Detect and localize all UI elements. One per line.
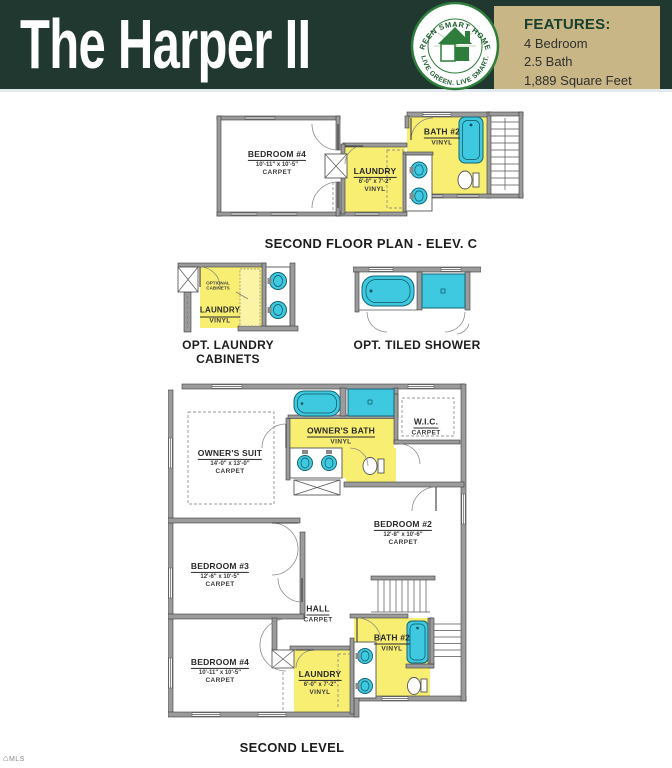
room-label-laundry: LAUNDRY 6'-0" x 7'-2" VINYL <box>299 663 342 697</box>
plan-second-floor-elev-c: BEDROOM #4 10'-11" x 10'-5" CARPET LAUND… <box>215 110 527 226</box>
chase-box <box>272 650 294 668</box>
feature-baths: 2.5 Bath <box>524 53 660 71</box>
room-label-owners-bath: OWNER'S BATH VINYL <box>307 420 375 447</box>
floor-plan-flyer: The Harper II FEATURES: 4 Bedroom 2.5 Ba… <box>0 0 672 768</box>
caption-second-floor-plan: SECOND FLOOR PLAN - ELEV. C <box>215 236 527 251</box>
room-label-bedroom2: BEDROOM #2 12'-8" x 10'-6" CARPET <box>374 513 432 547</box>
plan-second-level: OWNER'S SUIT 14'-0" x 13'-0" CARPET OWNE… <box>168 382 468 734</box>
room-label-bath2: BATH #2 VINYL <box>424 121 460 148</box>
features-heading: FEATURES: <box>524 16 660 33</box>
caption-opt-tiled-shower: OPT. TILED SHOWER <box>353 338 481 352</box>
header-divider <box>0 89 672 92</box>
chase-box <box>178 267 198 292</box>
toilet <box>363 458 384 475</box>
features-panel: FEATURES: 4 Bedroom 2.5 Bath 1,889 Squar… <box>494 6 660 89</box>
feature-bedrooms: 4 Bedroom <box>524 35 660 53</box>
toilet <box>458 171 479 189</box>
room-label-laundry: LAUNDRY 6'-0" x 7'-2" VINYL <box>354 160 397 194</box>
optional-cabinets-note: OPTIONAL CABINETS <box>201 281 235 292</box>
room-label-wic: W.I.C. CARPET <box>411 411 440 438</box>
watermark: ⌂MLS <box>3 753 25 763</box>
feature-sqft: 1,889 Square Feet <box>524 72 660 90</box>
bathtub <box>294 391 340 416</box>
room-label-laundry: LAUNDRY VINYL <box>200 299 240 326</box>
tiled-shower <box>422 274 465 308</box>
room-label-bedroom4: BEDROOM #4 10'-11" x 10'-5" CARPET <box>248 143 306 177</box>
caption-opt-laundry-cabinets: OPT. LAUNDRY CABINETS <box>152 338 304 366</box>
plan-opt-laundry-cabinets: OPTIONAL CABINETS LAUNDRY VINYL <box>152 262 304 336</box>
optional-cabinets <box>240 269 260 326</box>
header: The Harper II FEATURES: 4 Bedroom 2.5 Ba… <box>0 0 672 89</box>
bathtub <box>459 117 483 163</box>
room-label-owners-suite: OWNER'S SUIT 14'-0" x 13'-0" CARPET <box>198 442 262 476</box>
chase-box <box>325 154 347 178</box>
chase-box <box>294 480 340 495</box>
room-label-bedroom3: BEDROOM #3 12'-6" x 10'-5" CARPET <box>191 555 249 589</box>
door-arcs <box>367 312 469 334</box>
plan-opt-tiled-shower <box>353 264 481 336</box>
room-label-bedroom4: BEDROOM #4 10'-11" x 10'-5" CARPET <box>191 651 249 685</box>
caption-second-level: SECOND LEVEL <box>142 740 442 755</box>
bathtub <box>362 276 414 306</box>
room-label-hall: HALL CARPET <box>303 598 332 625</box>
stairs <box>491 118 519 190</box>
green-smart-homes-logo: GREEN SMART HOMES LIVE GREEN. LIVE SMART… <box>410 1 500 91</box>
opt-shower-drawing <box>353 264 481 336</box>
bathtub <box>407 621 428 663</box>
tiled-shower <box>348 389 394 416</box>
room-label-bath2: BATH #2 VINYL <box>374 627 410 654</box>
page-title: The Harper II <box>20 0 310 89</box>
toilet <box>408 678 428 695</box>
